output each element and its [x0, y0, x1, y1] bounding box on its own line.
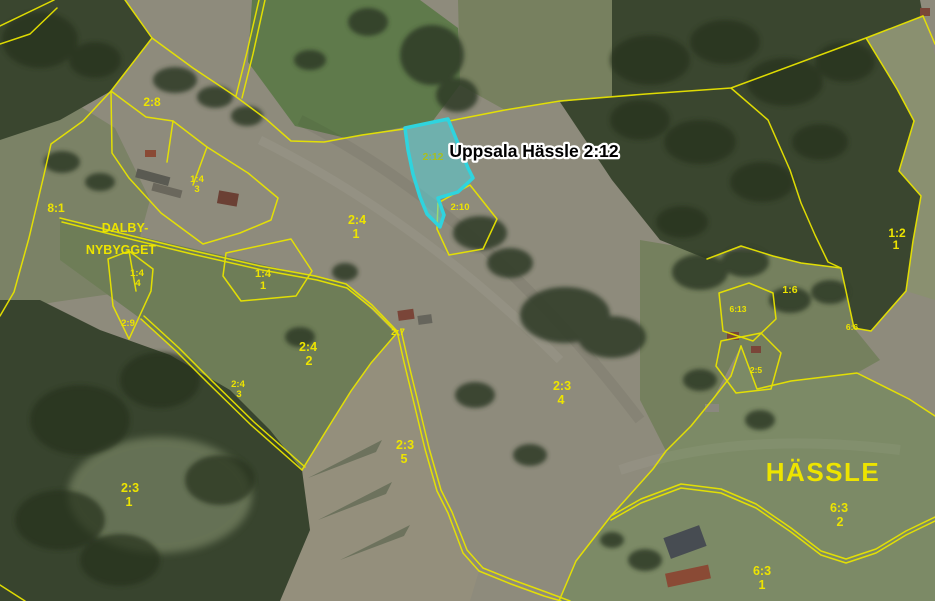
- parcel-label-6-6: 6:6: [846, 322, 859, 332]
- parcel-unit-2-3-1: 1: [126, 495, 133, 509]
- parcel-unit-1-4-3: 3: [194, 184, 199, 195]
- parcel-unit-6-3-1: 1: [759, 578, 766, 592]
- parcel-label-1-4-1: 1:4: [255, 268, 272, 280]
- parcel-label-6-13: 6:13: [729, 304, 746, 314]
- parcel-unit-1-4-1: 1: [260, 280, 266, 292]
- parcel-label-2-5: 2:5: [750, 365, 763, 375]
- parcel-label-2-12: 2:12: [422, 151, 443, 163]
- parcel-unit-1-4-4: 4: [135, 278, 141, 289]
- parcel-label-6-3-1: 6:3: [753, 564, 771, 578]
- place-label-hassle: HÄSSLE: [766, 457, 880, 487]
- parcel-label-2-10: 2:10: [450, 202, 469, 213]
- highlight-annotation-group: Uppsala Hässle 2:12: [449, 141, 619, 161]
- parcel-label-2-4-1: 2:4: [348, 213, 366, 227]
- parcel-label-2-3-1: 2:3: [121, 481, 139, 495]
- cadastral-map[interactable]: 2:8 8:1 1:4 3 DALBY- NYBYGGET 1:4 4 2:9 …: [0, 0, 935, 601]
- parcel-unit-1-2-1: 1: [893, 238, 900, 252]
- cadastral-map-canvas[interactable]: 2:8 8:1 1:4 3 DALBY- NYBYGGET 1:4 4 2:9 …: [0, 0, 935, 601]
- parcel-label-2-7: 2:7: [391, 327, 405, 338]
- parcel-label-1-6: 1:6: [782, 284, 797, 296]
- parcel-unit-2-3-4: 4: [558, 393, 565, 407]
- parcel-unit-2-4-3: 3: [236, 389, 241, 400]
- highlight-annotation: Uppsala Hässle 2:12: [449, 141, 619, 161]
- parcel-label-2-3-5: 2:3: [396, 438, 414, 452]
- parcel-label-2-8: 2:8: [143, 95, 161, 109]
- parcel-unit-2-4-1: 1: [353, 227, 360, 241]
- parcel-unit-2-3-5: 5: [401, 452, 408, 466]
- parcel-label-2-4-2: 2:4: [299, 340, 317, 354]
- place-label-dalby-line2: NYBYGGET: [86, 243, 157, 257]
- parcel-label-2-9: 2:9: [121, 318, 135, 329]
- place-label-dalby-line1: DALBY-: [102, 221, 149, 235]
- parcel-unit-6-3-2: 2: [837, 515, 844, 529]
- parcel-unit-2-4-2: 2: [306, 354, 313, 368]
- parcel-label-2-3-4: 2:3: [553, 379, 571, 393]
- parcel-label-6-3-2: 6:3: [830, 501, 848, 515]
- parcel-label-8-1: 8:1: [47, 201, 65, 215]
